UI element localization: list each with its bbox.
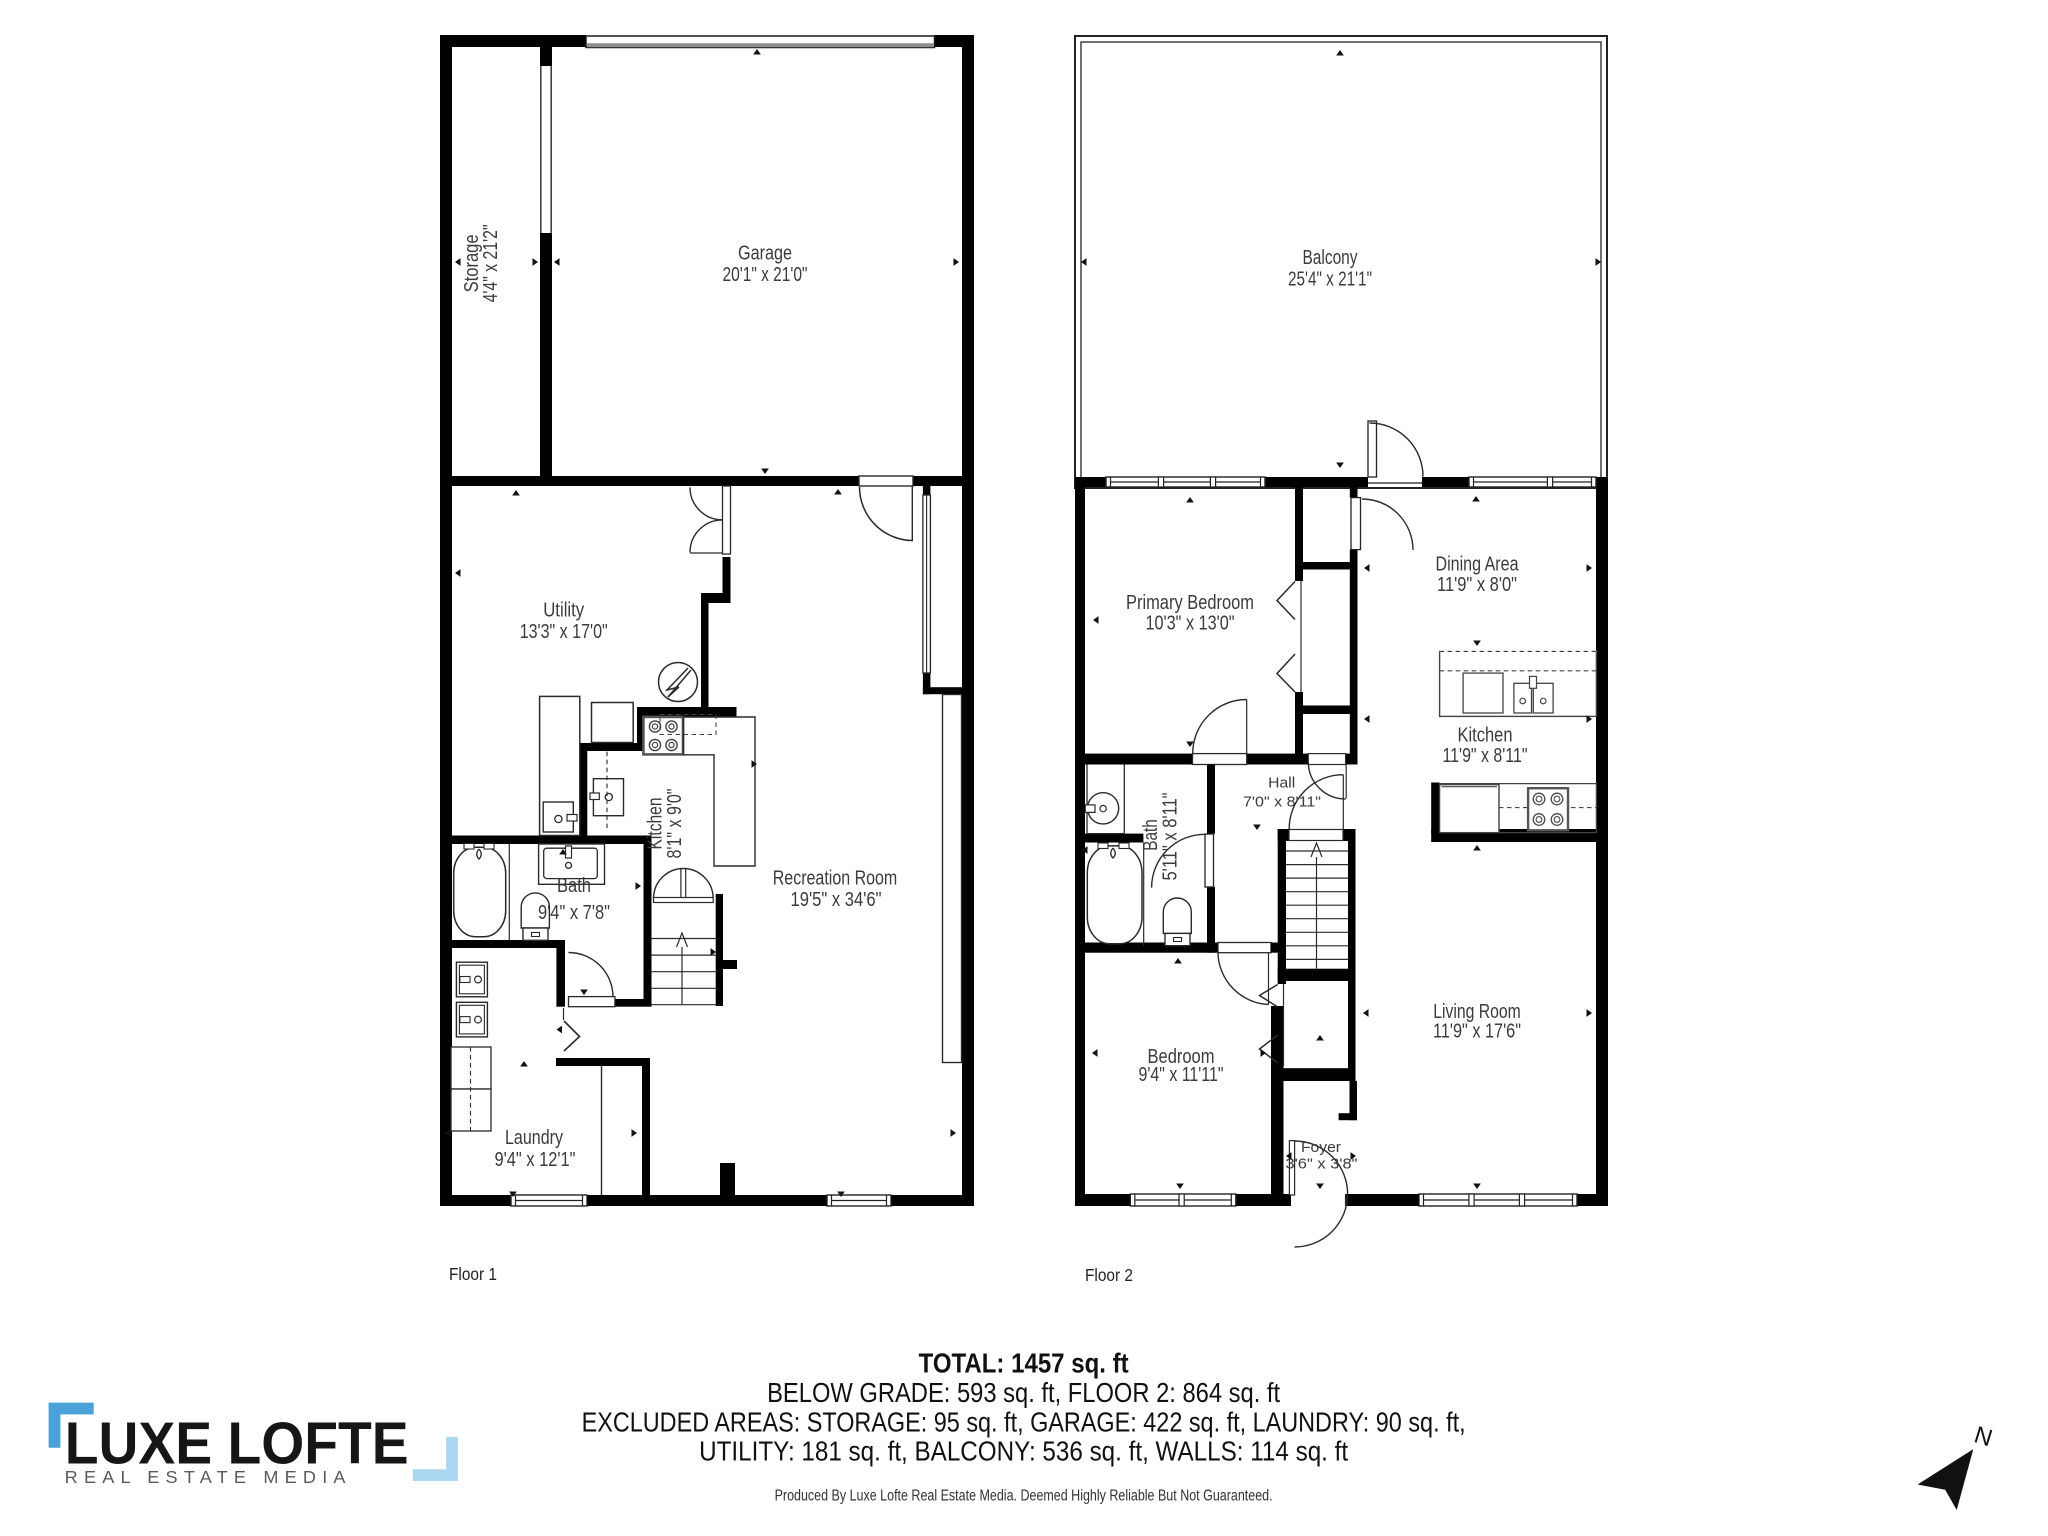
svg-text:9'4" x 11'11": 9'4" x 11'11": [1139, 1064, 1224, 1086]
svg-text:8'1" x 9'0": 8'1" x 9'0": [664, 789, 686, 859]
svg-text:UTILITY: 181 sq. ft, BALCONY:: UTILITY: 181 sq. ft, BALCONY: 536 sq. ft…: [699, 1436, 1348, 1467]
svg-text:13'3" x 17'0": 13'3" x 17'0": [520, 621, 608, 643]
svg-text:9'4" x 12'1": 9'4" x 12'1": [495, 1149, 576, 1171]
svg-text:Kitchen: Kitchen: [1458, 725, 1513, 747]
svg-text:Recreation Room: Recreation Room: [773, 868, 898, 890]
svg-text:Foyer: Foyer: [1301, 1139, 1341, 1156]
svg-text:Primary Bedroom: Primary Bedroom: [1126, 592, 1254, 614]
svg-text:Hall: Hall: [1268, 774, 1295, 791]
svg-text:25'4" x 21'1": 25'4" x 21'1": [1288, 269, 1372, 291]
svg-text:3'6" x 3'8": 3'6" x 3'8": [1286, 1156, 1358, 1173]
svg-text:EXCLUDED AREAS: STORAGE: 95 sq: EXCLUDED AREAS: STORAGE: 95 sq. ft, GARA…: [582, 1406, 1466, 1437]
svg-text:20'1" x 21'0": 20'1" x 21'0": [723, 264, 808, 286]
svg-text:11'9" x 8'0": 11'9" x 8'0": [1437, 574, 1517, 596]
svg-text:Dining Area: Dining Area: [1436, 554, 1520, 576]
svg-text:5'11" x 8'11": 5'11" x 8'11": [1160, 793, 1182, 881]
svg-text:TOTAL: 1457 sq. ft: TOTAL: 1457 sq. ft: [919, 1348, 1129, 1379]
svg-text:11'9" x 17'6": 11'9" x 17'6": [1433, 1021, 1521, 1043]
svg-text:BELOW GRADE: 593 sq. ft, FLOOR: BELOW GRADE: 593 sq. ft, FLOOR 2: 864 sq…: [767, 1377, 1280, 1408]
svg-text:7'0" x 8'11": 7'0" x 8'11": [1243, 794, 1321, 811]
svg-text:Floor 1: Floor 1: [449, 1264, 497, 1284]
svg-text:Balcony: Balcony: [1303, 247, 1358, 269]
svg-text:Laundry: Laundry: [505, 1127, 563, 1149]
svg-text:4'4" x 21'2": 4'4" x 21'2": [480, 224, 502, 302]
svg-text:9'4" x 7'8": 9'4" x 7'8": [538, 902, 610, 924]
svg-text:Produced By Luxe Lofte Real Es: Produced By Luxe Lofte Real Estate Media…: [775, 1487, 1273, 1504]
svg-text:10'3" x 13'0": 10'3" x 13'0": [1146, 613, 1235, 635]
svg-text:Garage: Garage: [738, 243, 792, 265]
svg-text:19'5" x 34'6": 19'5" x 34'6": [791, 889, 882, 911]
svg-text:11'9" x 8'11": 11'9" x 8'11": [1443, 745, 1528, 767]
svg-text:Bath: Bath: [557, 875, 591, 897]
svg-text:Utility: Utility: [543, 600, 584, 622]
svg-text:REAL ESTATE MEDIA: REAL ESTATE MEDIA: [65, 1467, 352, 1487]
svg-text:Floor 2: Floor 2: [1085, 1265, 1133, 1285]
